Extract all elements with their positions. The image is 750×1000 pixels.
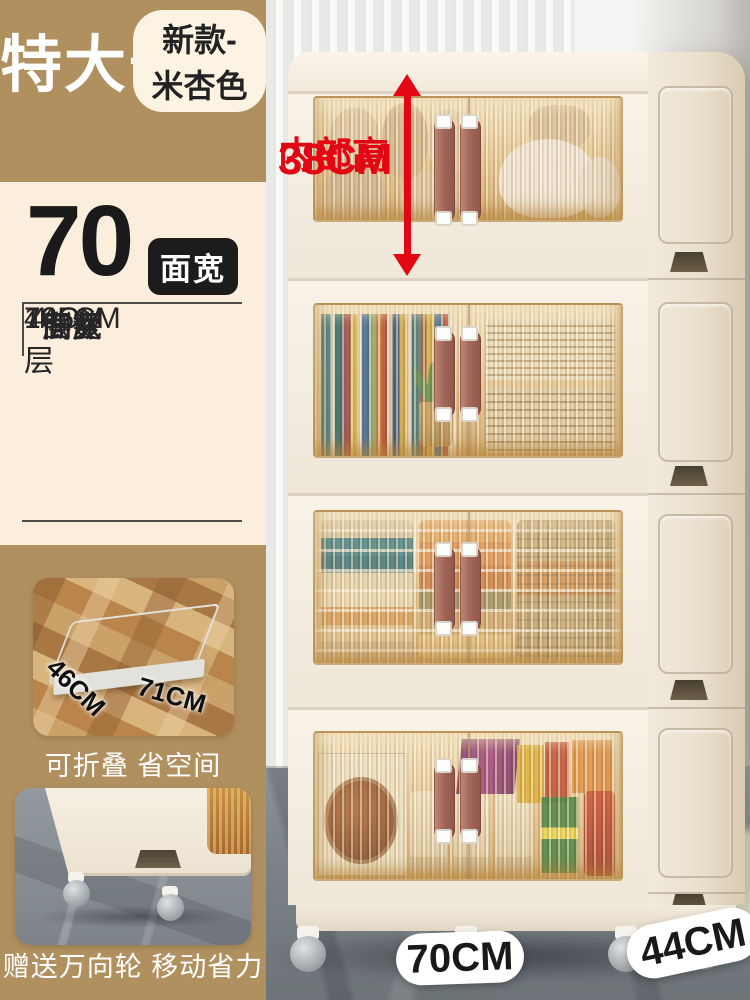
spec-value: 165CM (22, 302, 121, 356)
caster-wheel (157, 886, 197, 932)
handle-strap (460, 330, 481, 418)
width-dimension-label: 71CM (134, 671, 209, 720)
caster-tire (63, 880, 90, 907)
caster-wheel (288, 926, 328, 972)
cabinet-lid (288, 52, 648, 94)
caster-tire (290, 936, 326, 972)
cabinet-side-panel (648, 52, 745, 905)
tier-4-handle (434, 762, 481, 840)
width-dimension-pill: 70CM (395, 930, 525, 986)
handle-strap (460, 118, 481, 222)
arrow-up-icon (393, 74, 421, 96)
side-recess (658, 302, 733, 462)
annotation-value: 38CM (278, 136, 391, 184)
caster-wheel (63, 872, 103, 918)
handle-strap (434, 118, 455, 222)
stored-item (207, 788, 251, 854)
side-handle-slot (670, 466, 708, 486)
arrow-down-icon (393, 254, 421, 276)
base-notch (135, 850, 181, 868)
folded-box-photo: 46CM 71CM (33, 578, 234, 736)
photo2-caption: 赠送万向轮 移动省力 (0, 945, 266, 984)
width-number: 70 (26, 184, 131, 299)
tier-seam (648, 892, 745, 894)
handle-strap (434, 762, 455, 840)
tier-seam (648, 707, 745, 709)
tier-3-handle (434, 546, 481, 632)
side-recess (658, 86, 733, 244)
dimension-arrow (404, 94, 411, 256)
variant-pill: 新款-米杏色 (133, 10, 266, 112)
tier-seam (648, 278, 745, 280)
handle-strap (434, 330, 455, 418)
handle-strap (434, 546, 455, 632)
side-handle-slot (670, 252, 708, 272)
feature-panel: 46CM 71CM 可折叠 省空间 赠送万向轮 移动省力 (0, 545, 266, 1000)
side-handle-slot (670, 680, 708, 700)
caster-wheels-photo (15, 788, 251, 945)
divider (22, 520, 242, 522)
side-recess (658, 514, 733, 674)
width-badge: 面宽 (148, 238, 238, 295)
spec-table: 层数 4层 面宽 70CM 侧深 44CM 高度 165CM (22, 302, 242, 520)
size-badge-block: 特大号 新款-米杏色 (0, 0, 266, 182)
spec-panel: 70 面宽 层数 4层 面宽 70CM 侧深 44CM 高度 165CM (0, 182, 266, 545)
side-recess (658, 728, 733, 878)
handle-strap (460, 762, 481, 840)
tier-seam (648, 493, 745, 495)
photo1-caption: 可折叠 省空间 (0, 744, 266, 783)
tier-2-handle (434, 330, 481, 418)
caster-tire (157, 894, 184, 921)
product-detail-image: 内部高 38CM 70CM 44CM 特大号 新款-米杏色 70 面宽 层数 4… (0, 0, 750, 1000)
handle-strap (460, 546, 481, 632)
tier-1-handle (434, 118, 481, 222)
